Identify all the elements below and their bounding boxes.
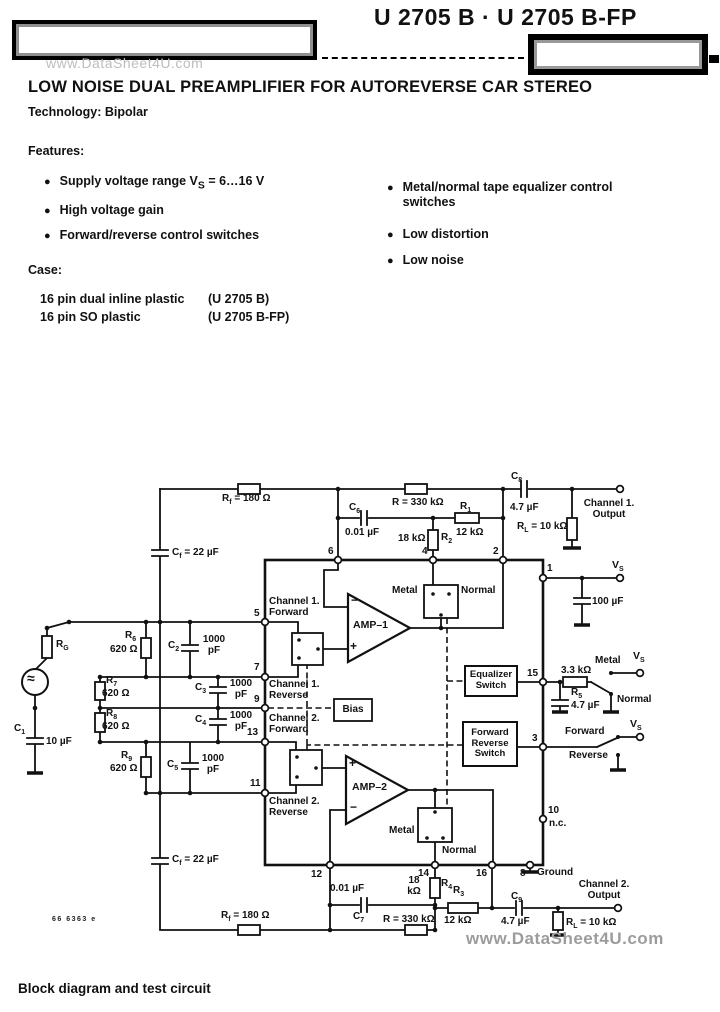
label-c1-val: 10 µF bbox=[46, 736, 72, 747]
label-ch2-fwd: Channel 2. Forward bbox=[269, 713, 323, 735]
label-r3-val: 12 kΩ bbox=[444, 915, 471, 926]
label-r2: R2 bbox=[441, 532, 452, 546]
label-normal-eq: Normal bbox=[617, 694, 651, 705]
label-ground: Ground bbox=[537, 867, 573, 878]
label-ch1-rev: Channel 1. Reverse bbox=[269, 679, 323, 701]
label-r4: R4 bbox=[441, 878, 452, 892]
label-r9: R9 bbox=[121, 750, 132, 764]
label-r1-val: 12 kΩ bbox=[456, 527, 483, 538]
label-metal-eq: Metal bbox=[595, 655, 621, 666]
label-amp1-plus: + bbox=[350, 640, 357, 653]
label-pin3: 3 bbox=[532, 733, 538, 744]
label-pin5: 5 bbox=[254, 608, 260, 619]
label-amp2-minus: − bbox=[350, 801, 357, 814]
resistor-symbols bbox=[42, 484, 587, 935]
label-pin2: 2 bbox=[493, 546, 499, 557]
label-pin8: 8 bbox=[520, 868, 526, 879]
label-pin11: 11 bbox=[250, 778, 261, 789]
label-ch1-out: Channel 1. Output bbox=[583, 498, 635, 520]
doc-number: 66 6363 e bbox=[52, 916, 97, 923]
label-metal1: Metal bbox=[392, 585, 418, 596]
label-metal2: Metal bbox=[389, 825, 415, 836]
label-rf-bot: Rf = 180 Ω bbox=[221, 910, 269, 924]
label-amp2: AMP–2 bbox=[352, 782, 387, 794]
label-bias: Bias bbox=[334, 699, 372, 721]
label-c2-val: 1000 pF bbox=[199, 634, 229, 656]
label-cf-bot: Cf = 22 µF bbox=[172, 854, 219, 868]
label-r2-val: 18 kΩ bbox=[398, 533, 425, 544]
label-r7-val: 620 Ω bbox=[102, 688, 129, 699]
label-c5-val: 1000 pF bbox=[198, 753, 228, 775]
label-c2: C2 bbox=[168, 640, 179, 654]
label-r8: R8 bbox=[106, 708, 117, 722]
label-c3: C3 bbox=[195, 682, 206, 696]
datasheet-page: U 2705 B · U 2705 B-FP www.DataSheet4U.c… bbox=[0, 0, 720, 1012]
label-r330-top: R = 330 kΩ bbox=[392, 497, 444, 508]
label-eq-switch: Equalizer Switch bbox=[465, 666, 517, 696]
label-normal1: Normal bbox=[461, 585, 495, 596]
label-c4: C4 bbox=[195, 714, 206, 728]
figure-caption: Block diagram and test circuit bbox=[18, 981, 211, 996]
label-pin7: 7 bbox=[254, 662, 260, 673]
label-cf-top: Cf = 22 µF bbox=[172, 547, 219, 561]
label-r4-val: 18 kΩ bbox=[404, 875, 424, 897]
label-gen: ≈ bbox=[27, 671, 35, 686]
signal-generator-icon bbox=[22, 669, 48, 695]
label-c5: C5 bbox=[167, 759, 178, 773]
label-r1: R1 bbox=[460, 501, 471, 515]
label-vs1: VS bbox=[612, 560, 624, 574]
label-r3: R3 bbox=[453, 885, 464, 899]
label-pin1: 1 bbox=[547, 563, 553, 574]
label-ch2-out: Channel 2. Output bbox=[575, 879, 633, 901]
label-reverse: Reverse bbox=[569, 750, 608, 761]
label-pin12: 12 bbox=[311, 869, 322, 880]
label-ch2-rev: Channel 2. Reverse bbox=[269, 796, 323, 818]
label-vs-fr: VS bbox=[630, 719, 642, 733]
label-pin15: 15 bbox=[527, 668, 538, 679]
label-rf-top: Rf = 180 Ω bbox=[222, 493, 270, 507]
watermark-bottom: www.DataSheet4U.com bbox=[466, 929, 664, 949]
label-c6-val: 0.01 µF bbox=[345, 527, 379, 538]
label-r8-val: 620 Ω bbox=[102, 721, 129, 732]
label-c8: C8 bbox=[511, 471, 522, 485]
label-fr-switch: Forward Reverse Switch bbox=[463, 722, 517, 766]
label-r6: R6 bbox=[125, 630, 136, 644]
label-amp2-plus: + bbox=[349, 757, 356, 770]
label-c1: C1 bbox=[14, 723, 25, 737]
label-r5-val: 3.3 kΩ bbox=[561, 665, 591, 676]
label-c15-val: 4.7 µF bbox=[571, 700, 600, 711]
label-pin6: 6 bbox=[328, 546, 334, 557]
label-amp1-minus: − bbox=[351, 594, 358, 607]
label-r5: R5 bbox=[571, 687, 582, 701]
label-100uf: 100 µF bbox=[592, 596, 623, 607]
label-c4-val: 1000 pF bbox=[226, 710, 256, 732]
label-c7-val: 0.01 µF bbox=[330, 883, 364, 894]
label-c9-val: 4.7 µF bbox=[501, 916, 530, 927]
label-pin16: 16 bbox=[476, 868, 487, 879]
label-amp1: AMP–1 bbox=[353, 620, 388, 632]
label-pin10-nc: n.c. bbox=[549, 818, 566, 829]
label-c6: C6 bbox=[349, 502, 360, 516]
label-r6-val: 620 Ω bbox=[110, 644, 137, 655]
label-rl1: RL = 10 kΩ bbox=[517, 521, 567, 535]
label-r7: R7 bbox=[106, 675, 117, 689]
label-c7: C7 bbox=[353, 911, 364, 925]
label-c9: C9 bbox=[511, 891, 522, 905]
label-c3-val: 1000 pF bbox=[226, 678, 256, 700]
label-r9-val: 620 Ω bbox=[110, 763, 137, 774]
label-rg: RG bbox=[56, 639, 69, 653]
label-r330-bot: R = 330 kΩ bbox=[383, 914, 435, 925]
label-vs-eq: VS bbox=[633, 651, 645, 665]
label-pin10: 10 bbox=[548, 805, 559, 816]
label-forward: Forward bbox=[565, 726, 604, 737]
label-c8-val: 4.7 µF bbox=[510, 502, 539, 513]
label-pin4: 4 bbox=[422, 546, 428, 557]
label-ch1-fwd: Channel 1. Forward bbox=[269, 596, 323, 618]
label-normal2: Normal bbox=[442, 845, 476, 856]
